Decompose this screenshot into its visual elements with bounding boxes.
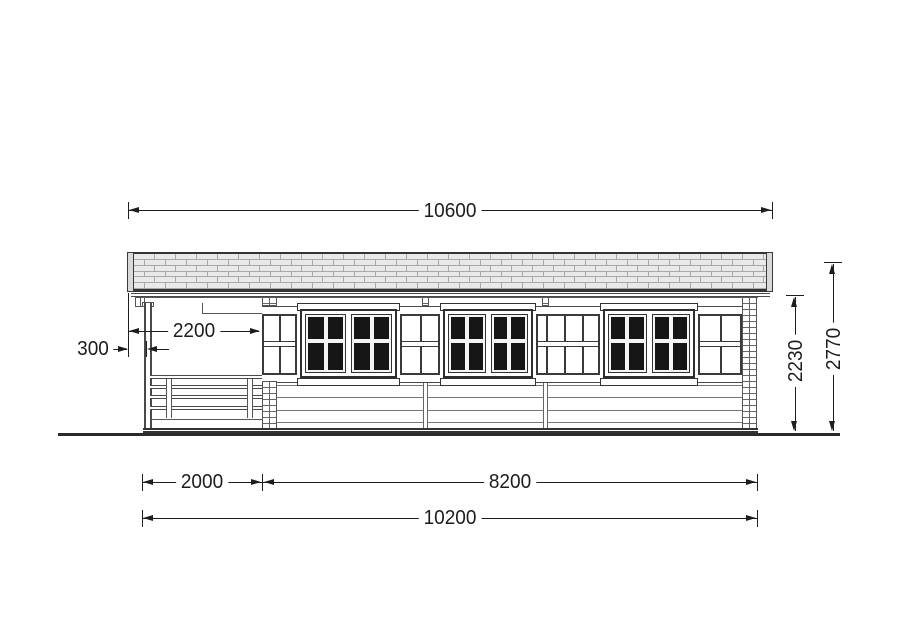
casement (448, 314, 486, 373)
dim-arrow (829, 421, 835, 431)
window-trim (297, 378, 400, 386)
dim-arrow (746, 515, 756, 521)
dim-ext-line (128, 293, 129, 357)
log-corner-left-top (262, 297, 277, 306)
casement (608, 314, 647, 373)
dim-base-total-label: 10200 (419, 508, 481, 528)
wall-stud-line (543, 381, 548, 429)
dim-roof-width-label: 10600 (419, 201, 481, 221)
roof-end-cap-left (127, 252, 134, 292)
casement (652, 314, 691, 373)
log-stud-top (542, 297, 549, 306)
wall-siding (277, 381, 742, 429)
window-dark-1 (300, 309, 397, 378)
terrace-railing (150, 375, 262, 429)
glazing-panel (400, 314, 440, 375)
dim-tail (157, 349, 169, 350)
roof-end-cap-right (766, 252, 773, 292)
dim-ext-tick (772, 202, 773, 219)
dim-total-height-label: 2770 (824, 323, 844, 375)
casement (351, 314, 392, 373)
dim-arrow (761, 207, 771, 213)
dim-arrow (791, 297, 797, 307)
window-dark-3 (603, 309, 695, 378)
glazing-panel (698, 314, 742, 375)
dim-arrow (129, 328, 139, 334)
dim-arrow (829, 264, 835, 274)
dim-ext-tick (786, 295, 804, 296)
dim-wall-height-label: 2230 (786, 335, 806, 387)
log-corner-left-bottom (262, 381, 277, 429)
dim-arrow (791, 421, 797, 431)
casement (305, 314, 346, 373)
dim-ext-tick (757, 474, 758, 491)
wall-top-line (140, 297, 758, 298)
wall-stud-line (423, 381, 428, 429)
dim-arrow (143, 515, 153, 521)
dim-arrow (250, 328, 260, 334)
dim-arrow (143, 479, 153, 485)
log-corner-right (742, 297, 757, 429)
dim-ext-tick (757, 510, 758, 527)
log-stud-top (422, 297, 429, 306)
window-trim (440, 378, 536, 386)
dim-arrow (147, 346, 157, 352)
dim-arrow (251, 479, 261, 485)
roof-brick-field (134, 252, 766, 292)
elevation-drawing: 10600 2200 300 2000 8200 10200 2230 2770 (0, 0, 900, 637)
ground-line (58, 433, 840, 436)
window-band (262, 306, 742, 383)
window-trim (600, 378, 698, 386)
window-dark-2 (443, 309, 533, 378)
dim-ext-tick (824, 262, 842, 263)
dim-overhang-label: 300 (72, 339, 113, 359)
dim-arrow (129, 207, 139, 213)
glazing-panel (536, 314, 600, 375)
dim-arrow (118, 346, 128, 352)
opening-step-line-h (202, 313, 262, 314)
glazing-panel (262, 314, 297, 375)
dim-porch-label: 2200 (168, 321, 220, 341)
dim-line-bottom-1 (142, 482, 757, 483)
casement (491, 314, 529, 373)
dim-arrow (746, 479, 756, 485)
dim-cabin-label: 8200 (484, 472, 536, 492)
dim-arrow (264, 479, 274, 485)
dim-terrace-label: 2000 (176, 472, 228, 492)
